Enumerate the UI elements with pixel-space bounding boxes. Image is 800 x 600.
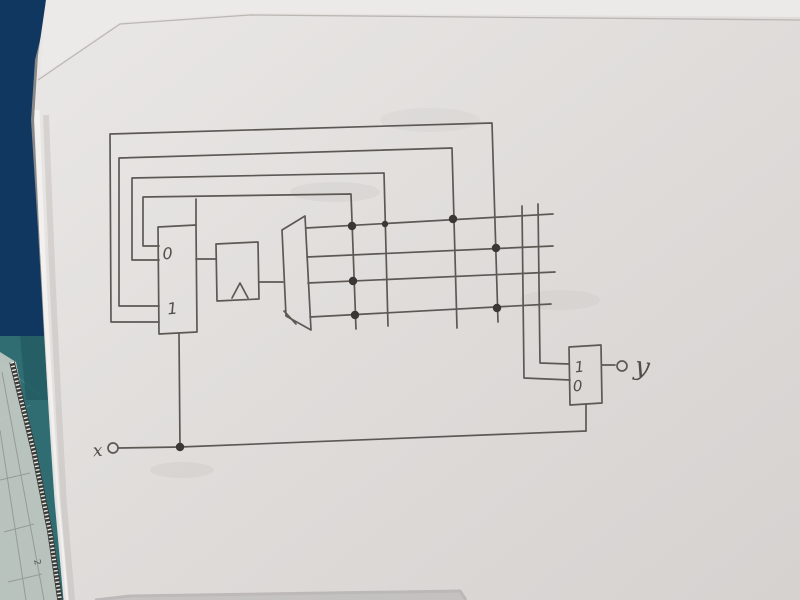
state-selector-label-1: 1: [166, 299, 178, 319]
paper-sheet: [34, 0, 800, 600]
junction-dot: [382, 221, 388, 227]
selector-bottom-stub: [179, 334, 180, 447]
junction-dot: [492, 244, 500, 252]
junction-dot: [449, 215, 457, 223]
smudge: [150, 462, 214, 478]
junction-dot: [348, 222, 356, 230]
sketch-photo-canvas: 2 0 1: [0, 0, 800, 600]
smudge: [290, 182, 380, 202]
junction-dot: [349, 277, 357, 285]
output-selector-label-1: 1: [574, 358, 585, 377]
input-label-x: x: [92, 441, 103, 462]
smudge: [380, 108, 480, 132]
state-selector-label-0: 0: [162, 244, 173, 264]
junction-dot: [176, 443, 184, 451]
junction-dot: [493, 304, 501, 312]
photo-circuit-sketch: 2 0 1: [0, 0, 800, 600]
output-selector-label-0: 0: [572, 377, 583, 396]
smudge: [520, 290, 600, 310]
junction-dot: [351, 311, 359, 319]
paper: [34, 0, 800, 600]
